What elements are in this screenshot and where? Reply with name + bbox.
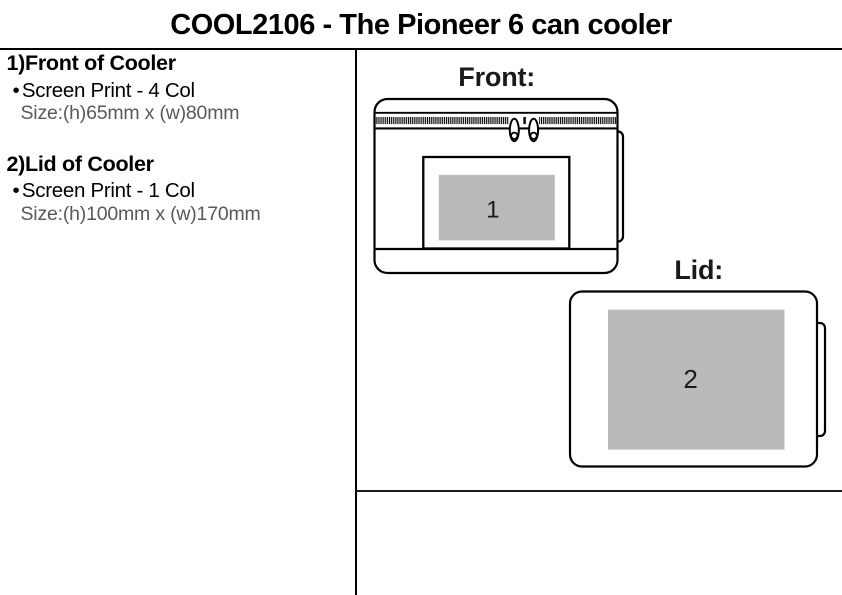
svg-text:1: 1 bbox=[486, 197, 499, 224]
svg-text:2: 2 bbox=[683, 364, 697, 394]
